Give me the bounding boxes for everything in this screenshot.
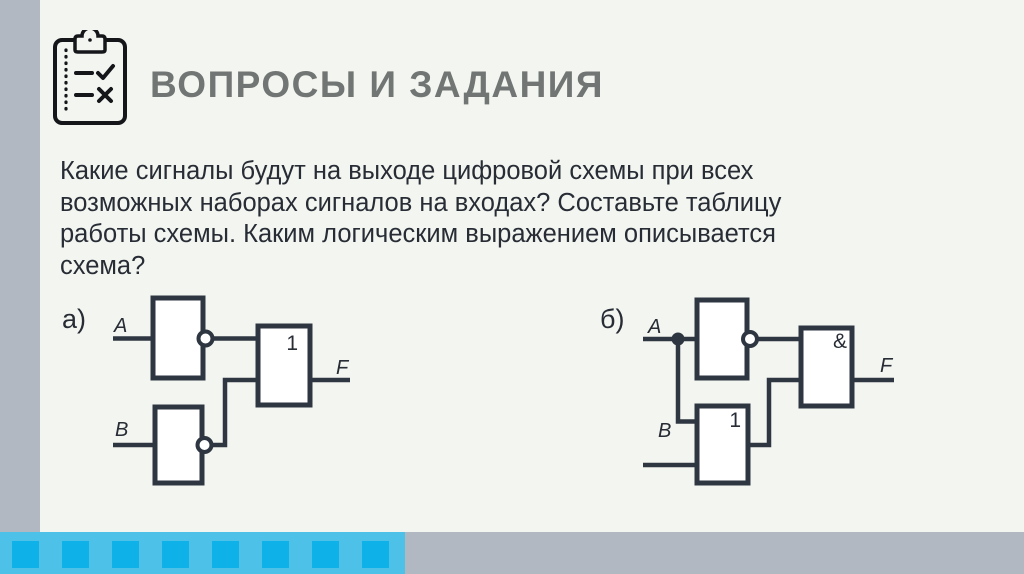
presentation-slide: ВОПРОСЫ И ЗАДАНИЯ Какие сигналы будут на…: [0, 0, 1024, 574]
strip-square: [212, 541, 239, 568]
circuit-a-label: а): [62, 304, 86, 334]
circuit-b-and-gate-label: &: [833, 330, 847, 353]
footer-strip-gray: [405, 532, 1024, 574]
strip-square: [12, 541, 39, 568]
circuit-diagrams: а) A B 1 F б) A B 1 & F: [0, 0, 1024, 574]
circuit-b-input-b-label: B: [658, 420, 671, 442]
strip-square: [112, 541, 139, 568]
circuit-b-not-gate: [697, 300, 747, 378]
circuit-a-output-label: F: [336, 357, 350, 379]
strip-square: [362, 541, 389, 568]
circuit-a-not-bubble-bottom: [198, 438, 212, 452]
circuit-b-label: б): [600, 304, 624, 334]
circuit-a-input-a-label: A: [113, 315, 127, 337]
strip-square: [162, 541, 189, 568]
circuit-a-not-bubble-top: [199, 332, 213, 346]
circuit-b-not-bubble: [743, 332, 757, 346]
circuit-a-not-gate-top: [153, 298, 203, 378]
circuit-a-not-gate-bottom: [155, 407, 202, 483]
circuit-b-output-label: F: [880, 355, 894, 377]
circuit-a-or-gate: [258, 326, 310, 405]
circuit-b-wire-junction-to-or: [678, 345, 697, 422]
circuit-a-or-gate-label: 1: [286, 332, 298, 355]
circuit-b-wire-or-to-and: [748, 380, 801, 445]
strip-square: [312, 541, 339, 568]
circuit-a-wire-bottom-to-or: [212, 380, 259, 445]
strip-square: [262, 541, 289, 568]
circuit-b-or-gate-label: 1: [729, 409, 741, 432]
circuit-b-input-a-label: A: [647, 316, 661, 338]
footer-strip-cyan: [0, 532, 405, 574]
circuit-a-input-b-label: B: [115, 419, 128, 441]
strip-square: [62, 541, 89, 568]
circuit-b-junction-dot: [672, 333, 685, 346]
